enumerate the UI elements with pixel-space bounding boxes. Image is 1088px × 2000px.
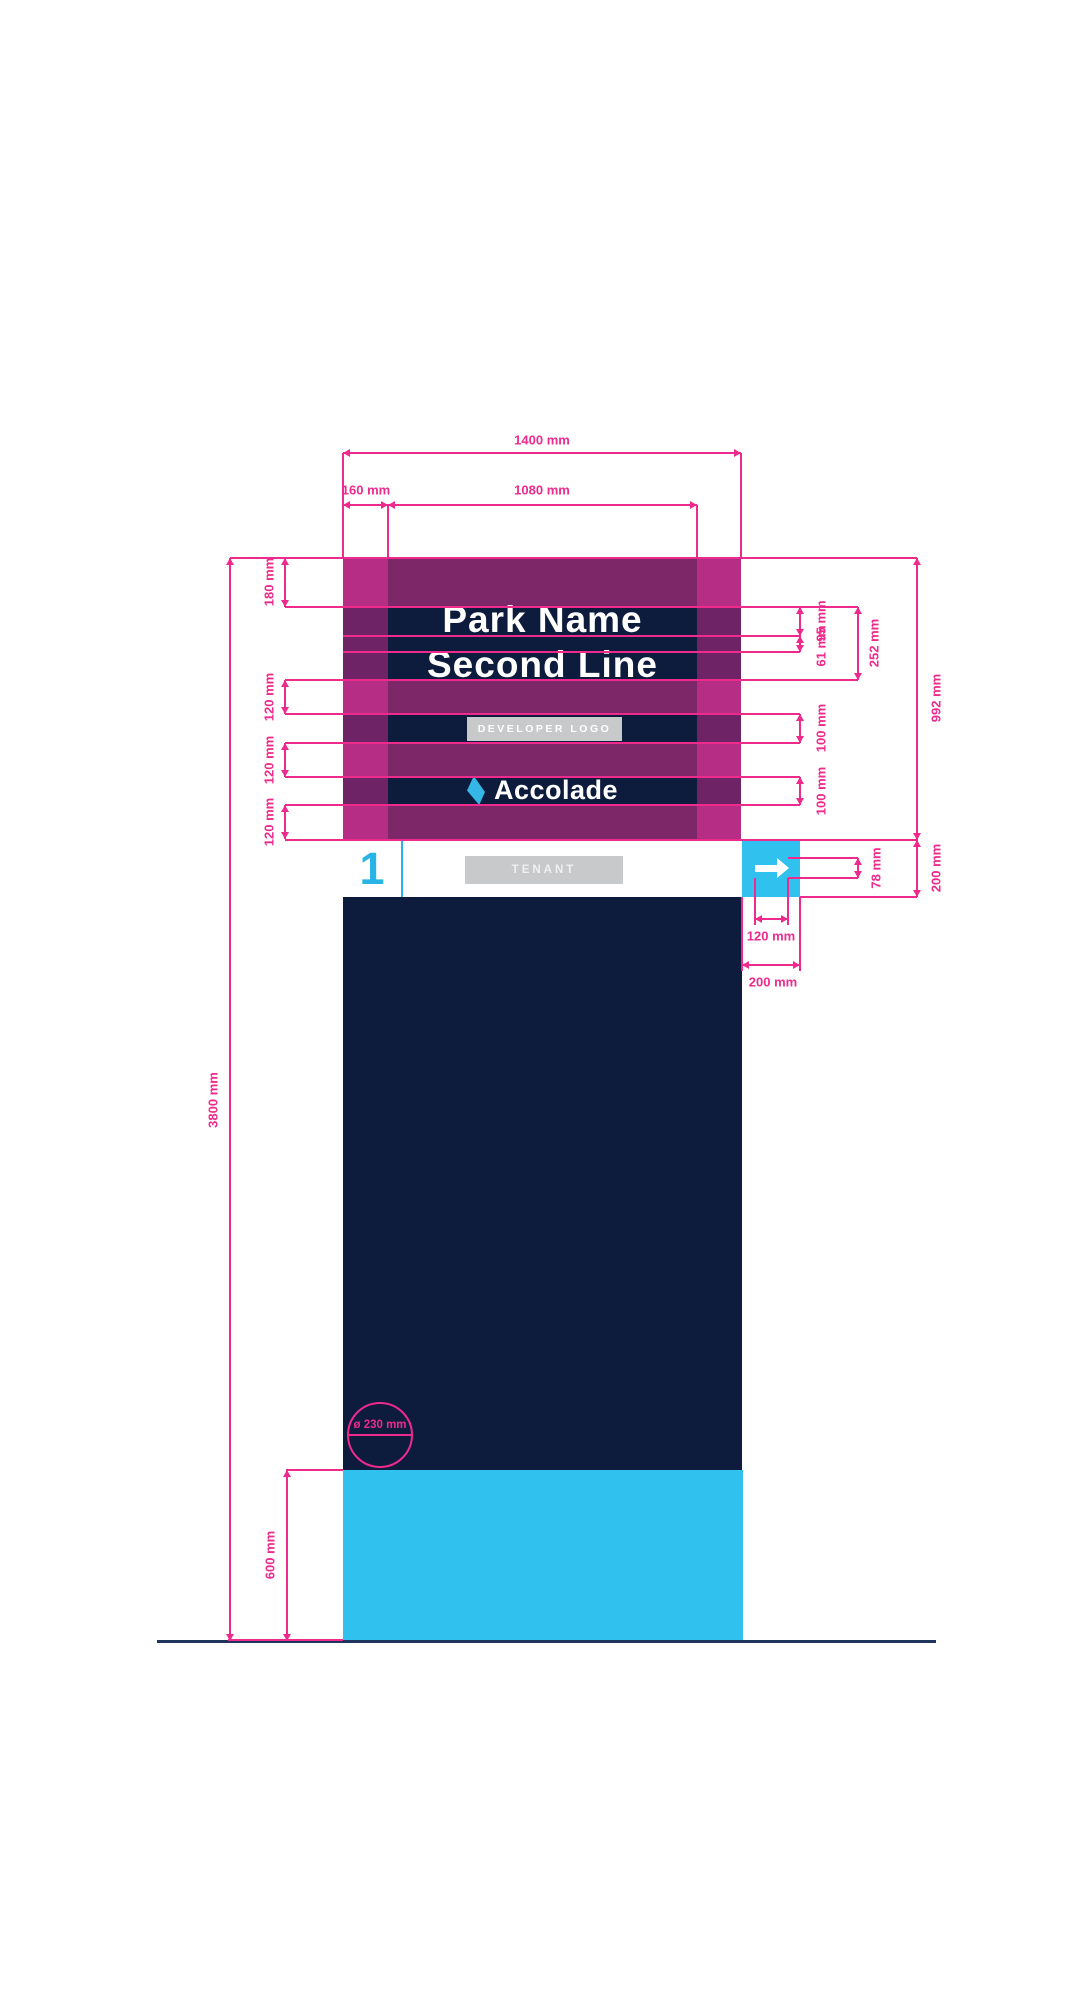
totem-base-panel	[343, 1470, 743, 1641]
direction-arrow-square	[742, 841, 800, 897]
totem-body-panel	[343, 897, 742, 1470]
dimension-extension-line	[285, 839, 917, 841]
tenant-divider-line	[401, 841, 403, 897]
arrowhead-down	[854, 673, 862, 680]
arrowhead-down	[796, 645, 804, 652]
dimension-extension-line	[387, 505, 389, 558]
tenant-strip: 1 TENANT	[343, 841, 741, 897]
signage-spec-drawing: Park Name Second Line DEVELOPER LOGO Acc…	[0, 0, 1088, 2000]
dimension-extension-line	[285, 804, 800, 806]
arrowhead-left	[755, 915, 762, 923]
arrowhead-down	[796, 736, 804, 743]
arrowhead-up	[796, 636, 804, 643]
dimension-line	[229, 558, 231, 1641]
header-bottom-band	[343, 805, 741, 839]
dimension-label: 100 mm	[814, 767, 829, 815]
tenant-number: 1	[343, 841, 401, 897]
dimension-label: 120 mm	[262, 673, 277, 721]
dimension-line	[286, 1470, 288, 1641]
arrowhead-down	[913, 833, 921, 840]
dimension-extension-line	[343, 651, 800, 653]
arrowhead-up	[281, 558, 289, 565]
dimension-extension-line	[285, 742, 800, 744]
park-name-line1: Park Name	[388, 605, 697, 635]
arrowhead-up	[854, 607, 862, 614]
arrowhead-down	[281, 832, 289, 839]
dimension-label: 120 mm	[747, 929, 795, 944]
dimension-label: 200 mm	[749, 975, 797, 990]
developer-logo-placeholder: DEVELOPER LOGO	[467, 717, 622, 741]
brand-name: Accolade	[494, 775, 618, 806]
dimension-extension-line	[788, 877, 858, 879]
arrowhead-right	[381, 501, 388, 509]
dimension-extension-line	[285, 776, 800, 778]
tenant-placeholder: TENANT	[465, 856, 623, 884]
arrowhead-down	[913, 890, 921, 897]
dimension-label: 992 mm	[929, 674, 944, 722]
dimension-label: 78 mm	[869, 847, 884, 888]
dimension-label: 120 mm	[262, 798, 277, 846]
dimension-line	[916, 558, 918, 840]
arrowhead-right	[781, 915, 788, 923]
arrowhead-left	[343, 501, 350, 509]
dimension-line	[916, 840, 918, 897]
dimension-extension-line	[285, 679, 858, 681]
right-arrow-icon-head	[777, 858, 789, 878]
arrowhead-left	[388, 501, 395, 509]
arrowhead-right	[690, 501, 697, 509]
dimension-label: 200 mm	[929, 844, 944, 892]
arrowhead-up	[854, 858, 862, 865]
header-spacer-band-2	[343, 743, 741, 777]
arrowhead-down	[281, 707, 289, 714]
arrowhead-left	[742, 961, 749, 969]
accolade-logo-icon	[467, 776, 485, 805]
dimension-extension-line	[799, 897, 801, 971]
dimension-extension-line	[696, 505, 698, 558]
post-diameter-label: ø 230 mm	[353, 1419, 406, 1431]
dimension-line	[742, 964, 800, 966]
park-name-line2: Second Line	[388, 650, 697, 680]
arrowhead-down	[796, 629, 804, 636]
dimension-label: 252 mm	[867, 619, 882, 667]
dimension-label: 180 mm	[262, 558, 277, 606]
arrowhead-up	[913, 840, 921, 847]
dimension-label: 61 mm	[814, 625, 829, 666]
dimension-extension-line	[285, 606, 858, 608]
dimension-label: 160 mm	[342, 483, 390, 498]
post-diameter-line	[348, 1434, 412, 1436]
dimension-label: 1080 mm	[514, 483, 570, 498]
arrowhead-down	[283, 1634, 291, 1641]
dimension-label: 120 mm	[262, 736, 277, 784]
dimension-line	[388, 504, 697, 506]
arrowhead-right	[734, 449, 741, 457]
arrowhead-down	[281, 770, 289, 777]
tenant-label: TENANT	[512, 864, 577, 876]
dimension-extension-line	[343, 635, 800, 637]
dimension-line	[343, 452, 741, 454]
arrowhead-down	[281, 600, 289, 607]
arrowhead-up	[226, 558, 234, 565]
arrowhead-down	[796, 798, 804, 805]
dimension-extension-line	[800, 896, 917, 898]
arrowhead-up	[796, 777, 804, 784]
arrowhead-left	[343, 449, 350, 457]
dimension-label: 3800 mm	[206, 1072, 221, 1128]
arrowhead-up	[283, 1470, 291, 1477]
arrowhead-up	[796, 607, 804, 614]
arrowhead-up	[796, 714, 804, 721]
arrowhead-up	[281, 743, 289, 750]
dimension-extension-line	[286, 1469, 343, 1471]
brand-row: Accolade	[388, 775, 697, 806]
dimension-extension-line	[788, 857, 858, 859]
dimension-line	[857, 607, 859, 680]
arrowhead-right	[793, 961, 800, 969]
dimension-label: 100 mm	[814, 704, 829, 752]
developer-logo-label: DEVELOPER LOGO	[478, 723, 612, 735]
dimension-extension-line	[230, 557, 917, 559]
dimension-extension-line	[740, 453, 742, 558]
arrowhead-up	[281, 680, 289, 687]
dimension-label: 1400 mm	[514, 433, 570, 448]
sign-header-panel: Park Name Second Line DEVELOPER LOGO Acc…	[343, 558, 741, 839]
arrowhead-up	[913, 558, 921, 565]
dimension-label: 600 mm	[263, 1531, 278, 1579]
header-spacer-band-1	[343, 680, 741, 714]
dimension-extension-line	[741, 897, 743, 971]
dimension-extension-line	[285, 713, 800, 715]
arrowhead-up	[281, 805, 289, 812]
arrowhead-down	[854, 871, 862, 878]
arrowhead-down	[226, 1634, 234, 1641]
